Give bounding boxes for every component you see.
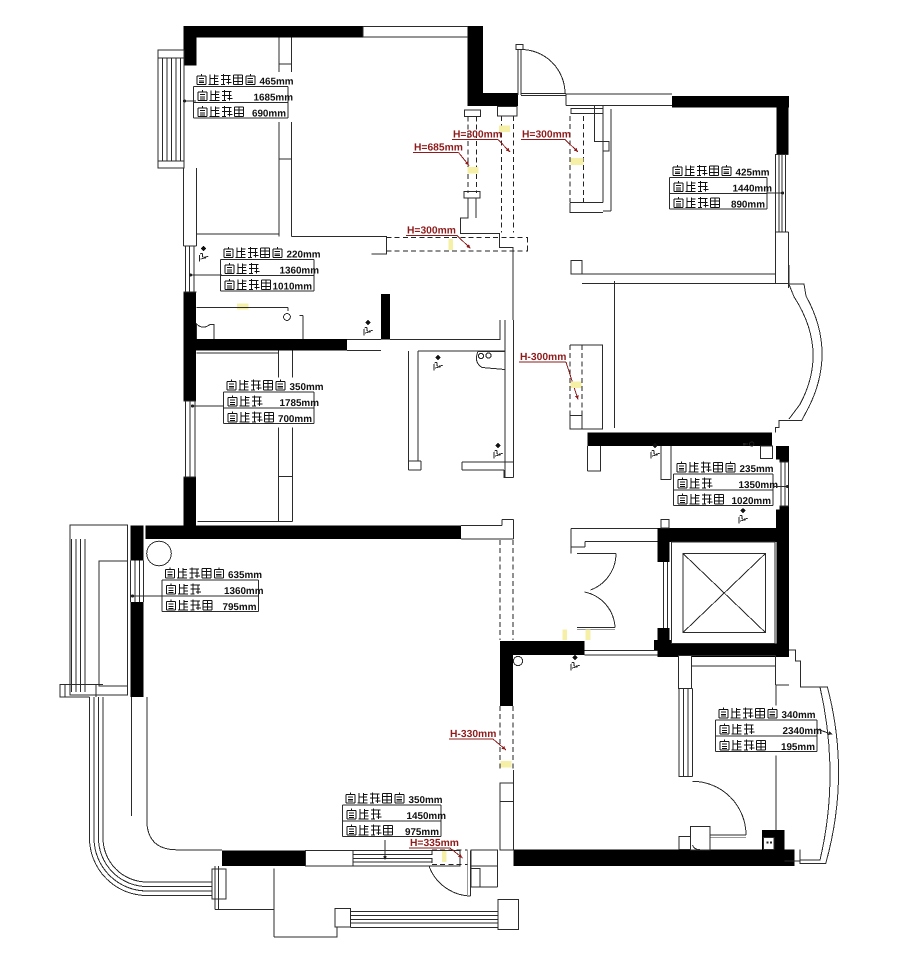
svg-text:1360mm: 1360mm (279, 266, 319, 277)
svg-text:235mm: 235mm (740, 464, 774, 475)
svg-text:H-300mm: H-300mm (520, 352, 566, 363)
svg-text:H=335mm: H=335mm (410, 838, 459, 849)
svg-text:1785mm: 1785mm (279, 398, 319, 409)
svg-text:H-330mm: H-330mm (450, 729, 496, 740)
svg-text:635mm: 635mm (228, 570, 262, 581)
svg-text:H=300mm: H=300mm (407, 226, 456, 237)
svg-text:H=300mm: H=300mm (453, 130, 502, 141)
svg-text:1685mm: 1685mm (253, 93, 293, 104)
svg-text:1450mm: 1450mm (406, 811, 446, 822)
svg-text:340mm: 340mm (782, 710, 816, 721)
svg-text:195mm: 195mm (781, 742, 815, 753)
svg-text:1010mm: 1010mm (272, 282, 312, 293)
svg-text:350mm: 350mm (409, 795, 443, 806)
svg-text:2340mm: 2340mm (782, 726, 822, 737)
svg-text:700mm: 700mm (278, 414, 312, 425)
svg-text:690mm: 690mm (252, 109, 286, 120)
svg-text:H=300mm: H=300mm (522, 130, 571, 141)
svg-text:1360mm: 1360mm (224, 586, 264, 597)
svg-text:425mm: 425mm (736, 168, 770, 179)
svg-text:220mm: 220mm (287, 250, 321, 261)
svg-text:890mm: 890mm (731, 200, 765, 211)
svg-text:1350mm: 1350mm (738, 480, 778, 491)
svg-text:H=685mm: H=685mm (414, 143, 463, 154)
svg-text:350mm: 350mm (290, 382, 324, 393)
svg-text:465mm: 465mm (260, 77, 294, 88)
svg-text:1020mm: 1020mm (731, 496, 771, 507)
svg-text:975mm: 975mm (405, 827, 439, 838)
svg-text:795mm: 795mm (222, 602, 256, 613)
svg-text:1440mm: 1440mm (732, 184, 772, 195)
